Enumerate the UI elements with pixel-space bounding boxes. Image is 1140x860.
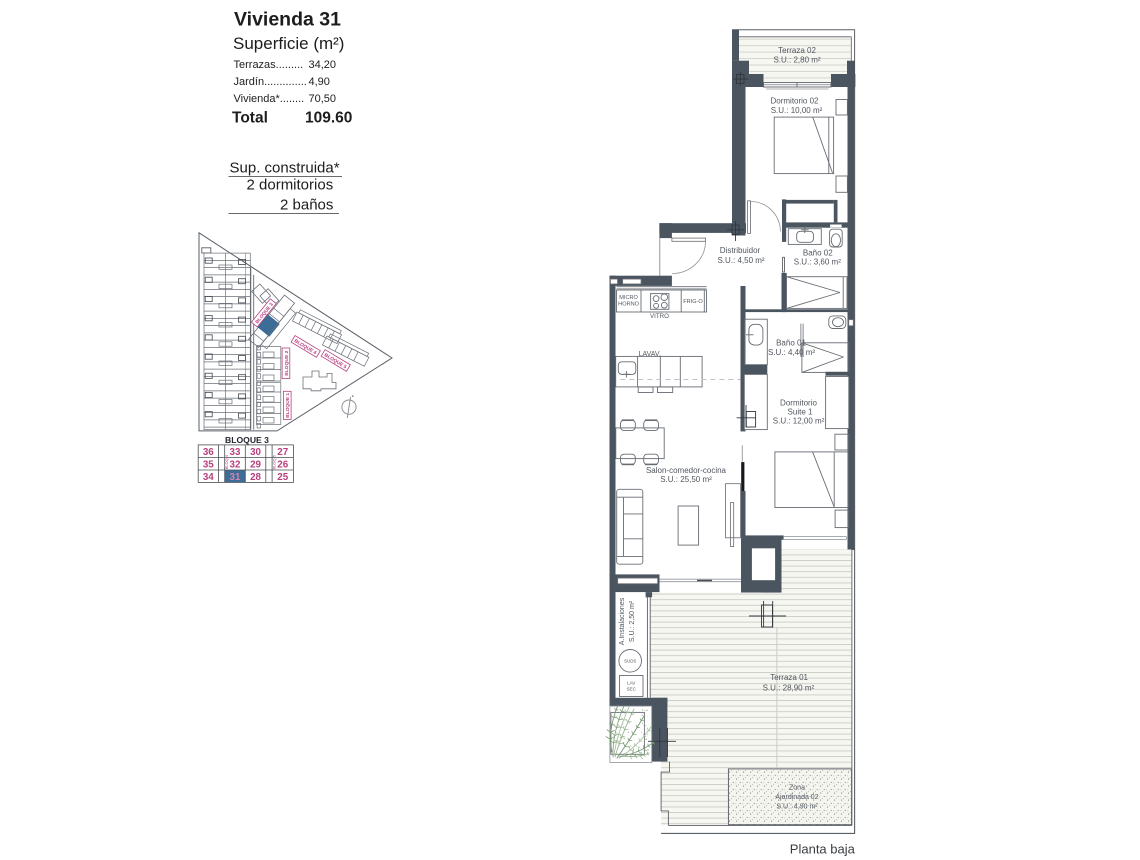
svg-text:36: 36: [203, 447, 214, 458]
svg-text:S.U.: 4,50 m²: S.U.: 4,50 m²: [717, 256, 764, 265]
svg-text:Dormitorio 02: Dormitorio 02: [770, 97, 819, 106]
svg-text:31: 31: [230, 472, 241, 483]
svg-text:27: 27: [277, 447, 288, 458]
svg-text:28: 28: [250, 472, 261, 483]
svg-text:LAV: LAV: [627, 680, 636, 685]
svg-text:BLOQUE 3: BLOQUE 3: [225, 435, 269, 445]
svg-text:MICRO: MICRO: [619, 295, 638, 301]
svg-text:Superficie (m²): Superficie (m²): [233, 34, 344, 53]
svg-text:SUDS: SUDS: [624, 659, 636, 664]
svg-text:109.60: 109.60: [305, 110, 352, 127]
svg-text:S.U.: 28,90 m²: S.U.: 28,90 m²: [763, 683, 815, 692]
svg-text:2 dormitorios: 2 dormitorios: [247, 177, 334, 194]
svg-text:Distribuidor: Distribuidor: [720, 246, 761, 255]
svg-text:HORNO: HORNO: [618, 301, 639, 307]
svg-text:33: 33: [230, 447, 241, 458]
svg-text:BLOQUE 2: BLOQUE 2: [284, 350, 290, 375]
svg-text:Suite 1: Suite 1: [788, 407, 813, 416]
svg-text:Jardín..............: Jardín..............: [234, 76, 307, 88]
svg-text:70,50: 70,50: [309, 93, 337, 105]
svg-text:4,90: 4,90: [309, 76, 330, 88]
svg-text:VITRO: VITRO: [650, 313, 669, 320]
svg-text:S.U.: 4,90 m²: S.U.: 4,90 m²: [776, 804, 818, 811]
svg-text:Salon-comedor-cocina: Salon-comedor-cocina: [646, 466, 727, 475]
svg-text:S.U.: 25,50 m²: S.U.: 25,50 m²: [660, 475, 712, 484]
svg-text:34: 34: [203, 472, 214, 483]
svg-text:Vivienda 31: Vivienda 31: [234, 9, 341, 31]
svg-text:Zona: Zona: [789, 784, 805, 791]
svg-text:Vivienda*........: Vivienda*........: [234, 93, 305, 105]
svg-text:Dormitorio: Dormitorio: [780, 398, 817, 407]
svg-text:S.U.: 3,60 m²: S.U.: 3,60 m²: [794, 258, 841, 267]
svg-text:S.U.: 2,80 m²: S.U.: 2,80 m²: [773, 56, 820, 65]
svg-text:FRIG-O: FRIG-O: [683, 299, 703, 305]
svg-text:Baño 02: Baño 02: [803, 248, 833, 257]
svg-text:Total: Total: [232, 110, 268, 127]
svg-text:35: 35: [203, 460, 214, 471]
svg-text:29: 29: [250, 460, 261, 471]
svg-text:Sup. construida*: Sup. construida*: [230, 160, 340, 177]
svg-text:30: 30: [250, 447, 261, 458]
svg-text:34,20: 34,20: [309, 59, 337, 71]
svg-text:S.U.: 2,50 m²: S.U.: 2,50 m²: [629, 600, 636, 642]
svg-text:SEC: SEC: [626, 687, 636, 692]
svg-text:S.U.: 12,00 m²: S.U.: 12,00 m²: [773, 416, 825, 425]
svg-text:BLOQUE 1: BLOQUE 1: [285, 393, 291, 418]
svg-text:S.U.: 4,40 m²: S.U.: 4,40 m²: [768, 348, 815, 357]
svg-text:2 baños: 2 baños: [280, 197, 333, 214]
svg-text:A.Instalaciones: A.Instalaciones: [619, 597, 626, 645]
svg-text:32: 32: [230, 460, 241, 471]
svg-text:26: 26: [277, 460, 288, 471]
svg-text:BLOQ 4: BLOQ 4: [224, 454, 229, 469]
svg-text:BLOQ 5: BLOQ 5: [271, 454, 276, 469]
svg-text:Terraza 01: Terraza 01: [770, 673, 808, 682]
svg-text:Ajardinada 02: Ajardinada 02: [775, 794, 818, 801]
svg-text:S.U.: 10,00 m²: S.U.: 10,00 m²: [771, 106, 823, 115]
svg-text:Terrazas.........: Terrazas.........: [234, 59, 304, 71]
svg-text:Planta baja: Planta baja: [790, 842, 856, 857]
svg-text:25: 25: [277, 472, 288, 483]
svg-text:Terraza 02: Terraza 02: [778, 46, 816, 55]
